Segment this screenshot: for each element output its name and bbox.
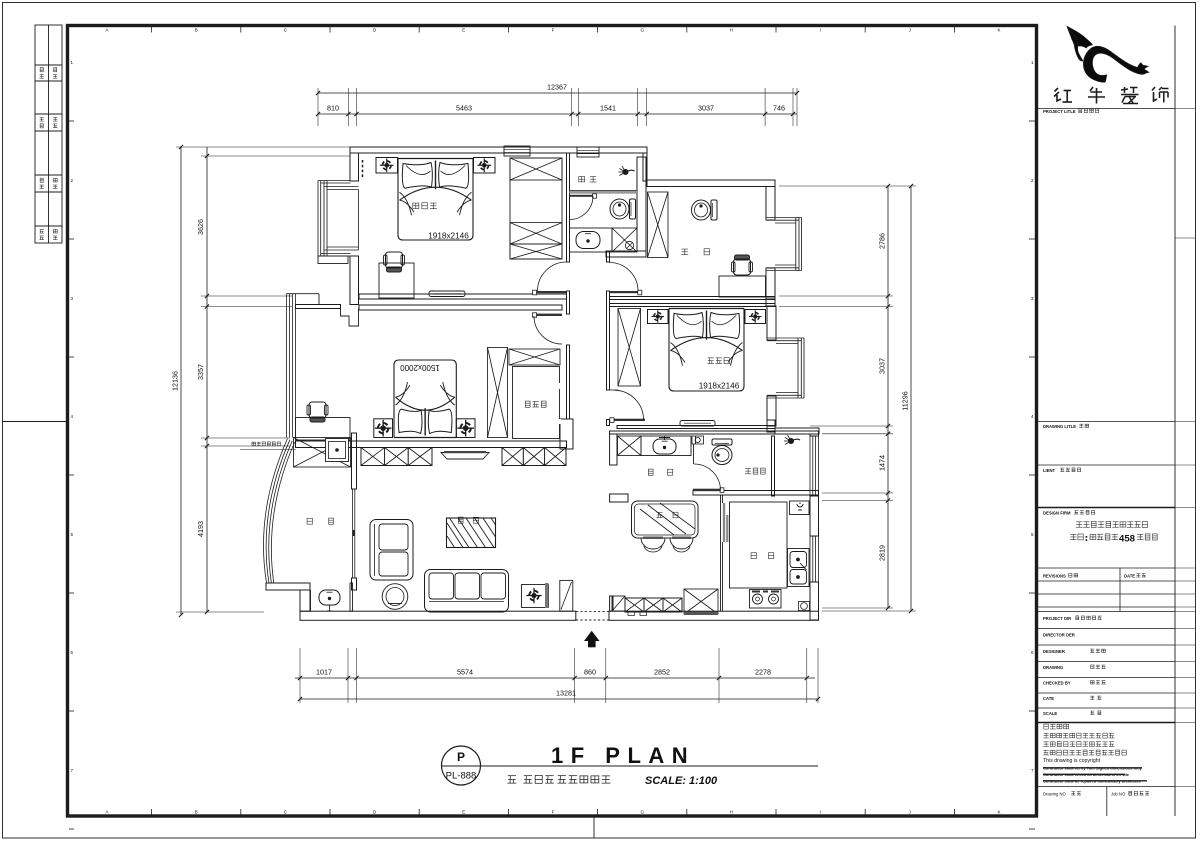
svg-text:2278: 2278: [755, 668, 771, 677]
svg-text:2786: 2786: [878, 233, 887, 249]
svg-text:LIENT: LIENT: [1043, 468, 1056, 473]
svg-text:CATE: CATE: [1043, 696, 1054, 701]
svg-text:11296: 11296: [901, 391, 910, 410]
svg-text:H: H: [730, 810, 733, 815]
svg-text:1918x2146: 1918x2146: [428, 232, 469, 241]
svg-text:E: E: [462, 28, 465, 33]
svg-text:1474: 1474: [878, 455, 887, 471]
svg-text:5463: 5463: [456, 104, 472, 113]
svg-text:SCALE: SCALE: [1043, 711, 1057, 716]
svg-text:I: I: [820, 28, 821, 33]
svg-text:A: A: [105, 810, 108, 815]
svg-text:DESIGNER: DESIGNER: [1043, 649, 1065, 654]
svg-text:13281: 13281: [556, 689, 576, 698]
svg-text:Job NO: Job NO: [1111, 792, 1126, 797]
svg-text:2852: 2852: [654, 668, 670, 677]
svg-text:DRAWING LITLE: DRAWING LITLE: [1043, 424, 1076, 429]
svg-text:458: 458: [1119, 533, 1136, 544]
svg-text:12136: 12136: [171, 371, 180, 391]
svg-text:3037: 3037: [698, 104, 714, 113]
svg-text:H: H: [730, 28, 733, 33]
svg-text:J: J: [909, 810, 911, 815]
svg-text:DRAWING: DRAWING: [1043, 665, 1063, 670]
svg-text:K: K: [997, 810, 1000, 815]
svg-text:G: G: [640, 810, 644, 815]
svg-text:DIRECTOR DER: DIRECTOR DER: [1043, 633, 1075, 638]
svg-text:Drawing NO: Drawing NO: [1043, 792, 1067, 797]
svg-text:G: G: [640, 28, 644, 33]
svg-text:3037: 3037: [878, 358, 887, 374]
svg-text:1541: 1541: [600, 104, 616, 113]
svg-text:4193: 4193: [196, 521, 205, 537]
svg-text:1F PLAN: 1F PLAN: [551, 743, 695, 768]
svg-text:A: A: [105, 28, 108, 33]
svg-text:746: 746: [773, 104, 785, 113]
svg-text:PROJECT LITLE: PROJECT LITLE: [1043, 109, 1076, 114]
svg-text:3626: 3626: [196, 219, 205, 235]
svg-text:B: B: [195, 810, 198, 815]
svg-text:I: I: [820, 810, 821, 815]
svg-text:B: B: [195, 28, 198, 33]
svg-text:810: 810: [327, 104, 339, 113]
svg-text:860: 860: [584, 668, 596, 677]
svg-text:F: F: [552, 28, 555, 33]
svg-text:DESIGN FIRM: DESIGN FIRM: [1043, 511, 1071, 516]
svg-text:1918x2146: 1918x2146: [699, 382, 740, 391]
svg-text:J: J: [909, 28, 911, 33]
svg-text:DATE: DATE: [1124, 574, 1135, 579]
svg-text:3357: 3357: [196, 364, 205, 380]
svg-text:This drawing is copyright: This drawing is copyright: [1043, 758, 1101, 764]
svg-text:12367: 12367: [547, 83, 567, 92]
svg-text:REVISIONS: REVISIONS: [1043, 574, 1066, 579]
svg-text:1017: 1017: [316, 668, 332, 677]
svg-text:PROJECT DIR: PROJECT DIR: [1043, 616, 1071, 621]
svg-text:P: P: [457, 750, 465, 764]
svg-text:2819: 2819: [878, 545, 887, 561]
svg-text:SCALE: 1:100: SCALE: 1:100: [645, 775, 718, 787]
svg-text:K: K: [997, 28, 1000, 33]
svg-text:5574: 5574: [457, 668, 473, 677]
svg-text:1500x2000: 1500x2000: [400, 363, 440, 372]
svg-text:PL-888: PL-888: [446, 771, 477, 782]
svg-text:F: F: [552, 810, 555, 815]
svg-text:E: E: [462, 810, 465, 815]
svg-text:CHECKED BY: CHECKED BY: [1043, 681, 1071, 686]
